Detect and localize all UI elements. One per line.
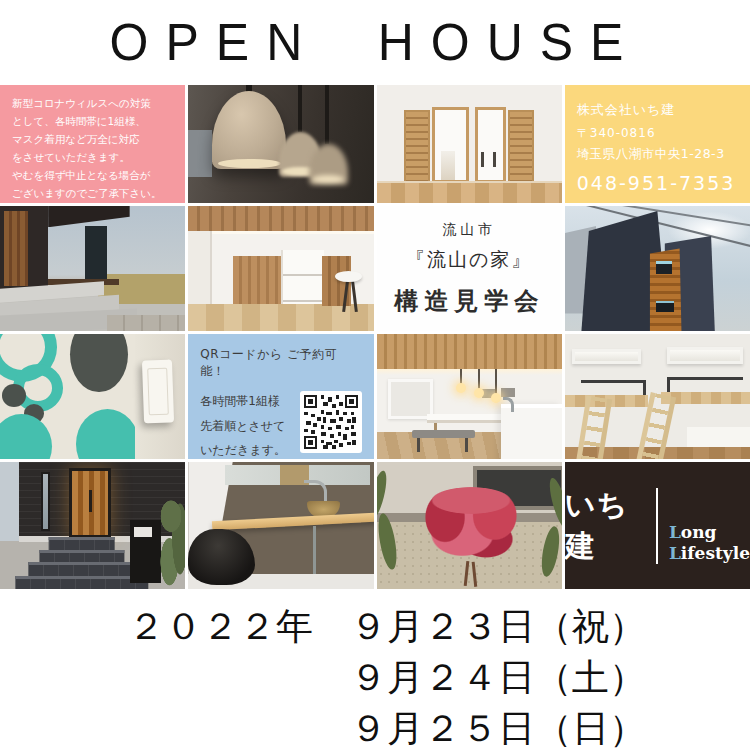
- small-window: [656, 301, 675, 312]
- high-window: [572, 349, 641, 364]
- drain-pipe: [313, 526, 316, 577]
- company-info-tile: 株式会社いち建 〒340-0816 埼玉県八潮市中央1-28-3 048-951…: [565, 85, 750, 203]
- date-line: ９月２４日（土）: [0, 652, 646, 703]
- brand-logo-tile: いち建 Long Lifestyle: [565, 462, 750, 589]
- wood-counter: [212, 512, 373, 529]
- photo-red-plant: [377, 462, 562, 589]
- mailbox-post: [130, 520, 161, 582]
- rail-post: [643, 380, 646, 396]
- wood-ceiling: [188, 206, 373, 234]
- photo-house-exterior: [0, 206, 185, 331]
- photo-wooden-doors: [377, 85, 562, 203]
- small-window: [656, 261, 673, 274]
- tagline-rest: ong: [681, 522, 717, 542]
- photo-loft-ladders: [565, 334, 750, 459]
- event-dates: ２０２２年 ９月２３日（祝） ９月２４日（土） ９月２５日（日）: [0, 601, 750, 750]
- pendant-lamp: [212, 91, 286, 169]
- wood-entry-door: [4, 211, 28, 286]
- black-toilet: [188, 529, 255, 585]
- high-window: [667, 347, 743, 365]
- red-foliage: [417, 482, 524, 566]
- sky-strip: [0, 462, 19, 541]
- logo-divider: [656, 488, 658, 564]
- company-phone: 048-951-7353: [577, 172, 738, 194]
- loft-rail: [667, 377, 743, 380]
- photo-interior-shelves: [188, 206, 373, 331]
- photo-dining-room: [377, 334, 562, 459]
- wood-cabinet: [233, 256, 281, 304]
- reservation-line: 各時間帯1組様: [200, 389, 299, 414]
- tiled-step: [15, 576, 148, 589]
- reservation-body: 各時間帯1組様 先着順とさせて いただきます。: [200, 389, 361, 459]
- brand-tagline: Long Lifestyle: [669, 522, 750, 563]
- stool-seat: [335, 271, 363, 282]
- date-line: ９月２５日（日）: [0, 703, 646, 750]
- title-bar: OPEN HOUSE: [0, 0, 750, 85]
- tagline-word: Long: [669, 522, 750, 542]
- wood-floor: [188, 304, 373, 332]
- gray-circle: [2, 384, 26, 407]
- wood-floor: [377, 181, 562, 203]
- dark-window: [85, 226, 107, 279]
- qr-code-icon: [300, 391, 362, 453]
- covid-line: やむを得ず中止となる場合が: [12, 166, 173, 184]
- wall-art: [501, 388, 516, 397]
- kitchen-faucet: [503, 397, 514, 412]
- louver-door: [404, 110, 430, 183]
- pendant-light: [478, 369, 480, 390]
- stone-path: [107, 315, 185, 331]
- kitchen-island: [501, 404, 562, 459]
- wood-slat-ceiling: [377, 334, 562, 369]
- reservation-line: 先着順とさせて: [200, 414, 299, 439]
- doorway: [475, 107, 506, 183]
- company-address: 埼玉県八潮市中央1-28-3: [577, 146, 738, 163]
- window-glimpse: [188, 130, 212, 177]
- tagline-initial: L: [669, 543, 681, 563]
- shelf-unit: [281, 250, 324, 304]
- wood-entry-door: [69, 468, 112, 538]
- tagline-rest: ifestyle: [681, 543, 750, 563]
- bench-leg: [417, 438, 420, 452]
- photo-pendant-lamps: [188, 85, 373, 203]
- doorway: [432, 107, 469, 183]
- event-city: 流山市: [442, 221, 496, 239]
- photo-entrance-steps: [0, 462, 185, 589]
- tiled-step: [48, 537, 115, 550]
- green-shrub: [159, 498, 185, 589]
- company-name: 株式会社いち建: [577, 101, 738, 119]
- lamp-cord: [298, 85, 302, 132]
- tiled-step: [28, 562, 135, 576]
- reservation-line: いただきます。: [200, 438, 299, 459]
- wainscot-panel: [687, 427, 750, 447]
- reservation-lines: 各時間帯1組様 先着順とさせて いただきます。: [200, 389, 299, 459]
- window-shade: [388, 379, 433, 419]
- light-switch-plate: [142, 360, 174, 423]
- teal-circle: [0, 414, 52, 459]
- pendant-light: [495, 369, 497, 395]
- gray-circle: [70, 334, 127, 392]
- lamp-cord: [325, 85, 329, 144]
- reservation-headline: QRコードから ご予約可能！: [200, 346, 361, 380]
- covid-line: マスク着用など万全に対応: [12, 130, 173, 148]
- photo-grid: 新型コロナウィルスへの対策 として、各時間帯に1組様、 マスク着用など万全に対応…: [0, 85, 750, 589]
- pendant-light: [460, 369, 462, 385]
- covid-line: として、各時間帯に1組様、: [12, 112, 173, 130]
- mirror-band: [225, 465, 370, 485]
- date-line: ２０２２年 ９月２３日（祝）: [0, 601, 646, 652]
- brand-name: いち建: [565, 485, 643, 567]
- covid-line: をさせていただきます。: [12, 148, 173, 166]
- tiled-step: [39, 550, 124, 563]
- louver-door: [508, 110, 534, 183]
- event-type: 構造見学会: [394, 285, 544, 317]
- bench-leg: [465, 438, 468, 452]
- indirect-light: [377, 369, 562, 375]
- event-title-tile: 流山市 『流山の家』 構造見学会: [377, 206, 562, 331]
- covid-line: ございますのでご了承下さい。: [12, 184, 173, 202]
- photo-dark-house: [565, 206, 750, 331]
- sliding-door: [188, 231, 212, 304]
- company-postal-code: 〒340-0816: [577, 125, 738, 142]
- open-house-flyer: OPEN HOUSE 新型コロナウィルスへの対策 として、各時間帯に1組様、 マ…: [0, 0, 750, 750]
- covid-line: 新型コロナウィルスへの対策: [12, 94, 173, 112]
- slit-window: [41, 472, 50, 530]
- photo-bathroom: [188, 462, 373, 589]
- tagline-word: Lifestyle: [669, 543, 750, 563]
- page-title: OPEN HOUSE: [110, 13, 641, 72]
- reservation-tile: QRコードから ご予約可能！ 各時間帯1組様 先着順とさせて いただきます。: [188, 334, 373, 459]
- loft-rail: [581, 380, 646, 383]
- teal-circle: [76, 409, 139, 459]
- bench: [412, 430, 475, 438]
- covid-notice-tile: 新型コロナウィルスへの対策 として、各時間帯に1組様、 マスク着用など万全に対応…: [0, 85, 185, 203]
- tagline-initial: L: [669, 522, 681, 542]
- photo-teal-wallpaper: [0, 334, 185, 459]
- event-house-name: 『流山の家』: [406, 247, 532, 273]
